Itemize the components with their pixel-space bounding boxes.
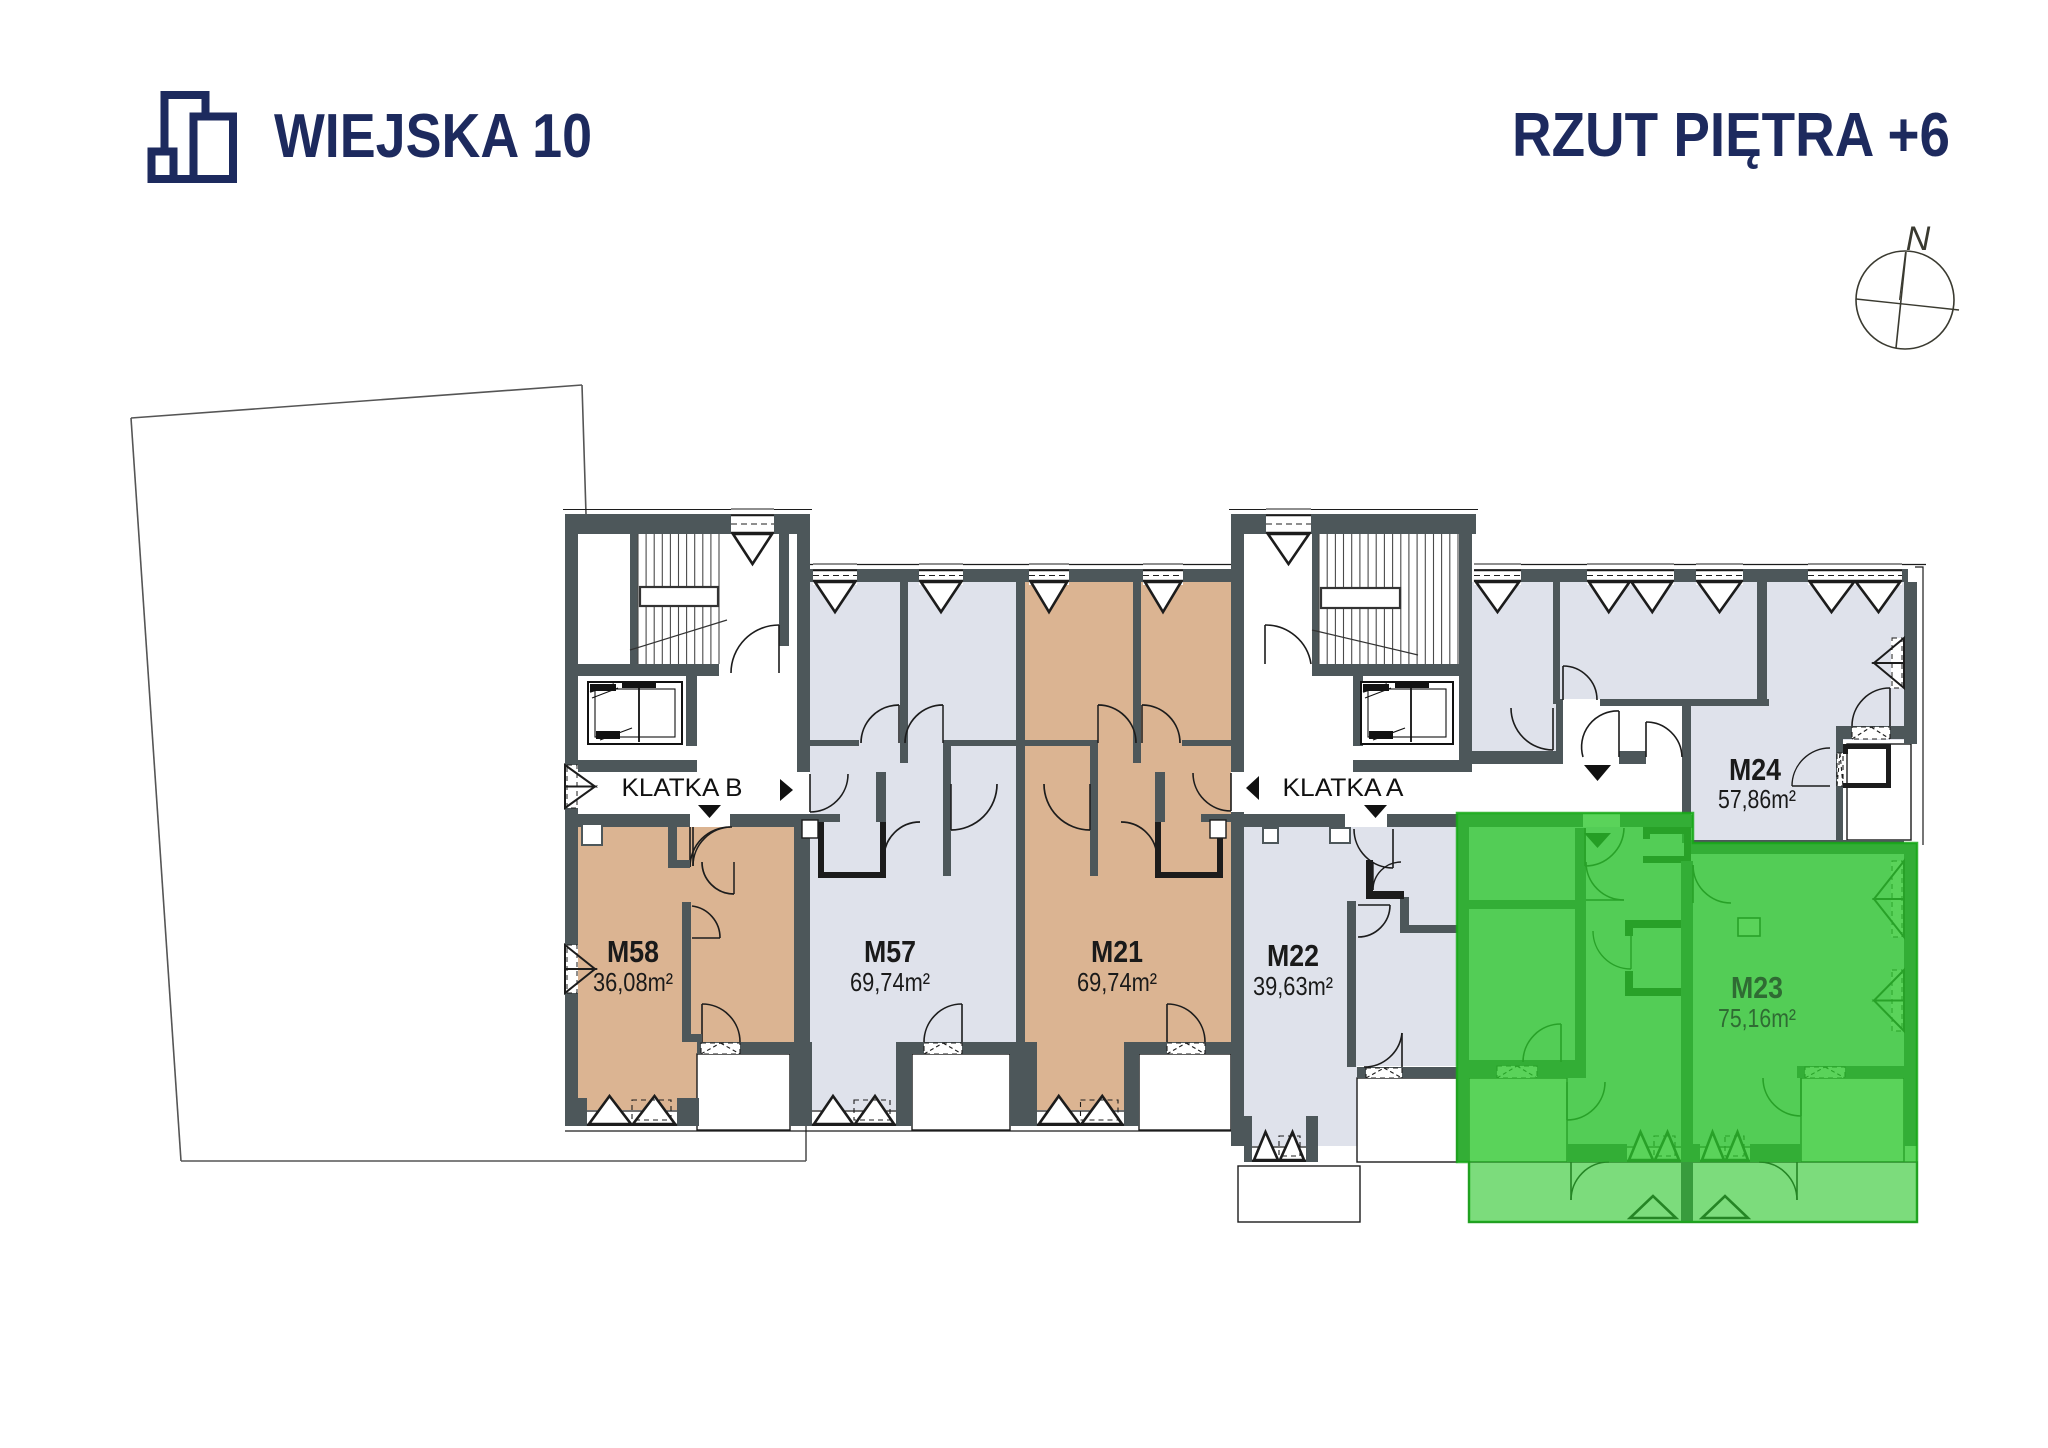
svg-text:M21: M21 [1091, 934, 1143, 969]
svg-text:RZUT PIĘTRA +6: RZUT PIĘTRA +6 [1512, 101, 1950, 170]
svg-text:M23: M23 [1731, 970, 1783, 1005]
svg-text:75,16m²: 75,16m² [1718, 1003, 1796, 1033]
svg-text:M22: M22 [1267, 938, 1319, 973]
svg-text:69,74m²: 69,74m² [850, 967, 930, 997]
svg-text:36,08m²: 36,08m² [593, 967, 673, 997]
svg-text:39,63m²: 39,63m² [1253, 971, 1333, 1001]
svg-text:M57: M57 [864, 934, 916, 969]
svg-text:KLATKA A: KLATKA A [1283, 774, 1404, 802]
svg-text:69,74m²: 69,74m² [1077, 967, 1157, 997]
svg-text:M24: M24 [1729, 752, 1782, 787]
svg-text:WIEJSKA 10: WIEJSKA 10 [274, 102, 592, 171]
svg-text:KLATKA B: KLATKA B [622, 774, 743, 802]
svg-text:M58: M58 [607, 934, 659, 969]
svg-text:57,86m²: 57,86m² [1718, 784, 1796, 814]
svg-text:N: N [1906, 220, 1931, 258]
